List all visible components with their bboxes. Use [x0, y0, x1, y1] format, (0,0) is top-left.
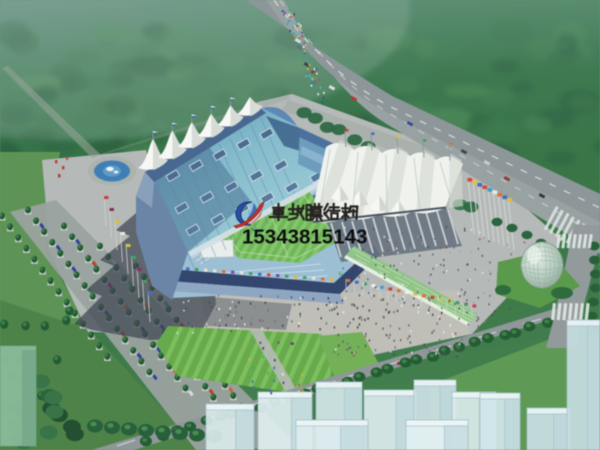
svg-text:15343815143: 15343815143 [242, 226, 367, 249]
